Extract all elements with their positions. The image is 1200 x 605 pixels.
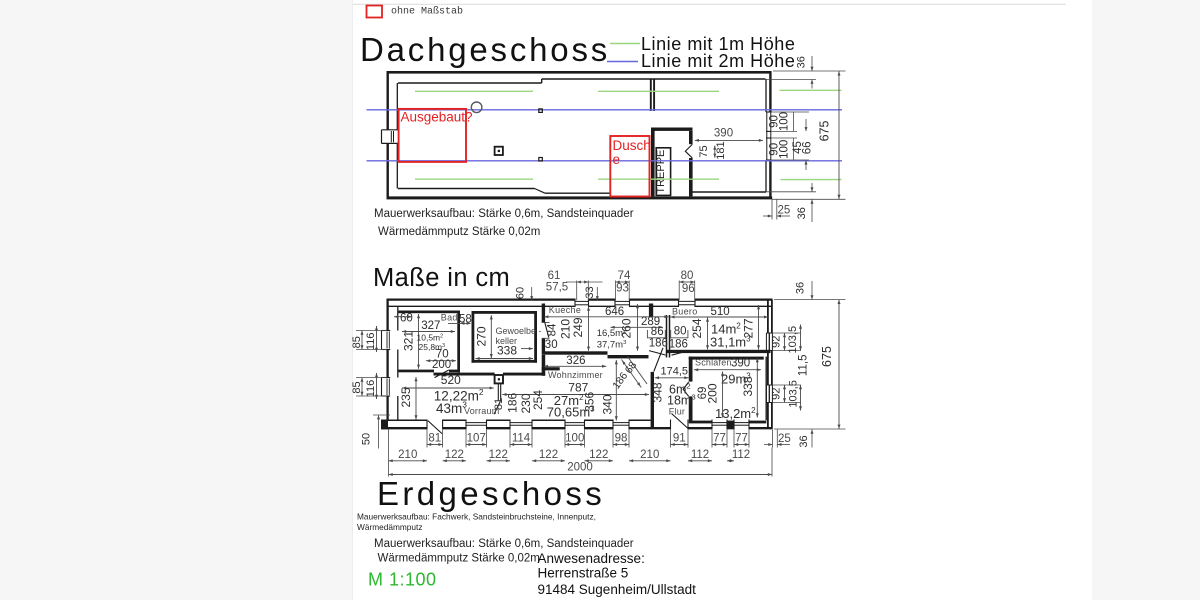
svg-text:36: 36 <box>795 282 807 294</box>
svg-text:230: 230 <box>519 393 533 413</box>
svg-text:Mauerwerksaufbau: Stärke 0,6m,: Mauerwerksaufbau: Stärke 0,6m, Sandstein… <box>374 538 634 550</box>
svg-text:326: 326 <box>566 355 585 367</box>
svg-text:M 1:100: M 1:100 <box>368 569 437 589</box>
svg-text:96: 96 <box>682 283 695 295</box>
svg-text:100: 100 <box>778 112 790 131</box>
svg-text:116: 116 <box>365 380 377 398</box>
svg-text:e: e <box>613 152 621 167</box>
svg-text:11,5: 11,5 <box>797 355 809 377</box>
svg-text:235: 235 <box>399 387 413 407</box>
svg-text:66: 66 <box>801 141 813 154</box>
svg-text:81: 81 <box>428 433 441 445</box>
svg-text:75: 75 <box>698 145 710 157</box>
svg-text:86: 86 <box>651 326 664 338</box>
svg-text:Herrenstraße 5: Herrenstraße 5 <box>538 566 629 581</box>
svg-text:100: 100 <box>565 433 584 445</box>
svg-text:338: 338 <box>741 376 755 396</box>
svg-text:Dusch: Dusch <box>613 138 651 153</box>
svg-text:186: 186 <box>505 392 519 412</box>
svg-text:31,1m3: 31,1m3 <box>710 335 751 350</box>
svg-text:10,5m2: 10,5m2 <box>417 333 444 343</box>
svg-text:254: 254 <box>690 318 704 338</box>
svg-text:510: 510 <box>711 306 730 318</box>
svg-text:520: 520 <box>441 373 461 387</box>
svg-text:Wohnzimmer: Wohnzimmer <box>548 370 603 380</box>
svg-text:186: 186 <box>649 337 668 349</box>
svg-text:340: 340 <box>601 394 615 414</box>
svg-text:60: 60 <box>400 312 413 324</box>
svg-text:210: 210 <box>398 449 417 461</box>
svg-text:50: 50 <box>360 433 372 445</box>
svg-text:100: 100 <box>778 140 790 159</box>
svg-text:675: 675 <box>818 121 832 142</box>
svg-text:122: 122 <box>489 449 508 461</box>
svg-text:37,7m3: 37,7m3 <box>597 340 627 351</box>
svg-text:210: 210 <box>640 449 659 461</box>
svg-text:Wärmedämmputz Stärke 0,02m: Wärmedämmputz Stärke 0,02m <box>378 553 540 565</box>
svg-text:122: 122 <box>445 449 464 461</box>
svg-text:103,5: 103,5 <box>787 326 799 354</box>
svg-text:Gewoelbe -: Gewoelbe - <box>496 326 542 336</box>
svg-text:80: 80 <box>681 270 694 282</box>
svg-text:36: 36 <box>798 435 810 447</box>
svg-text:98: 98 <box>615 433 628 445</box>
svg-text:Dachgeschoss: Dachgeschoss <box>360 31 610 68</box>
svg-text:356: 356 <box>582 391 596 411</box>
svg-text:114: 114 <box>512 433 531 445</box>
svg-text:77: 77 <box>735 433 748 445</box>
svg-text:675: 675 <box>820 346 834 367</box>
svg-text:Ausgebaut?: Ausgebaut? <box>401 110 473 125</box>
svg-text:Bad: Bad <box>441 313 458 323</box>
svg-text:36: 36 <box>796 207 808 219</box>
svg-text:186: 186 <box>669 338 688 350</box>
svg-text:390: 390 <box>714 128 733 140</box>
svg-text:Wärmedämmputz: Wärmedämmputz <box>357 522 422 532</box>
svg-text:181: 181 <box>715 141 727 159</box>
svg-text:60: 60 <box>514 287 526 299</box>
svg-text:249: 249 <box>571 317 585 337</box>
svg-text:Linie mit 2m Höhe: Linie mit 2m Höhe <box>641 51 795 71</box>
svg-text:ohne Maßstab: ohne Maßstab <box>391 6 463 18</box>
svg-text:25: 25 <box>778 433 791 445</box>
svg-text:Kueche: Kueche <box>549 305 581 315</box>
svg-text:77: 77 <box>713 433 726 445</box>
svg-text:Maße in cm: Maße in cm <box>373 264 510 292</box>
svg-text:30: 30 <box>545 339 558 351</box>
svg-text:321: 321 <box>402 331 416 351</box>
svg-text:57,5: 57,5 <box>546 282 568 294</box>
svg-text:Buero: Buero <box>672 306 698 316</box>
svg-text:Erdgeschoss: Erdgeschoss <box>377 475 605 512</box>
svg-text:Anwesenadresse:: Anwesenadresse: <box>538 551 645 566</box>
svg-text:260: 260 <box>620 318 634 338</box>
svg-text:103,5: 103,5 <box>788 380 800 408</box>
svg-text:25: 25 <box>778 205 791 217</box>
svg-text:69: 69 <box>697 387 709 400</box>
svg-text:2000: 2000 <box>567 461 593 473</box>
svg-text:270: 270 <box>475 326 489 346</box>
svg-text:112: 112 <box>732 449 750 461</box>
svg-text:112: 112 <box>691 449 709 461</box>
svg-text:174,5: 174,5 <box>661 366 689 378</box>
svg-text:91: 91 <box>673 433 686 445</box>
svg-text:Flur: Flur <box>669 407 685 417</box>
svg-text:327: 327 <box>421 320 440 332</box>
svg-text:92: 92 <box>771 336 783 348</box>
svg-text:348: 348 <box>651 382 665 402</box>
svg-text:36: 36 <box>795 56 807 68</box>
svg-text:91484 Sugenheim/Ullstadt: 91484 Sugenheim/Ullstadt <box>538 582 697 597</box>
svg-text:92: 92 <box>771 388 783 400</box>
svg-text:Wärmedämmputz Stärke 0,02m: Wärmedämmputz Stärke 0,02m <box>378 226 540 238</box>
svg-text:Mauerwerksaufbau: Stärke 0,6m,: Mauerwerksaufbau: Stärke 0,6m, Sandstein… <box>374 208 634 220</box>
svg-text:107: 107 <box>467 433 486 445</box>
svg-text:338: 338 <box>497 343 517 357</box>
svg-text:74: 74 <box>618 270 631 282</box>
svg-text:122: 122 <box>539 449 558 461</box>
svg-text:Vorraum: Vorraum <box>464 406 499 416</box>
svg-text:84: 84 <box>546 323 558 336</box>
svg-text:646: 646 <box>605 306 624 318</box>
svg-text:122: 122 <box>589 449 608 461</box>
svg-text:Mauerwerksaufbau: Fachwerk, Sa: Mauerwerksaufbau: Fachwerk, Sandsteinbru… <box>357 512 596 522</box>
svg-text:80: 80 <box>674 326 687 338</box>
svg-text:85: 85 <box>351 381 363 393</box>
svg-text:61: 61 <box>548 270 561 282</box>
svg-text:390: 390 <box>731 357 750 369</box>
svg-text:TREPPE: TREPPE <box>655 150 667 194</box>
svg-text:93: 93 <box>616 283 629 295</box>
svg-text:254: 254 <box>531 390 545 410</box>
svg-text:Schlafen: Schlafen <box>695 357 732 367</box>
svg-text:33: 33 <box>584 286 596 298</box>
svg-text:116: 116 <box>365 333 377 351</box>
